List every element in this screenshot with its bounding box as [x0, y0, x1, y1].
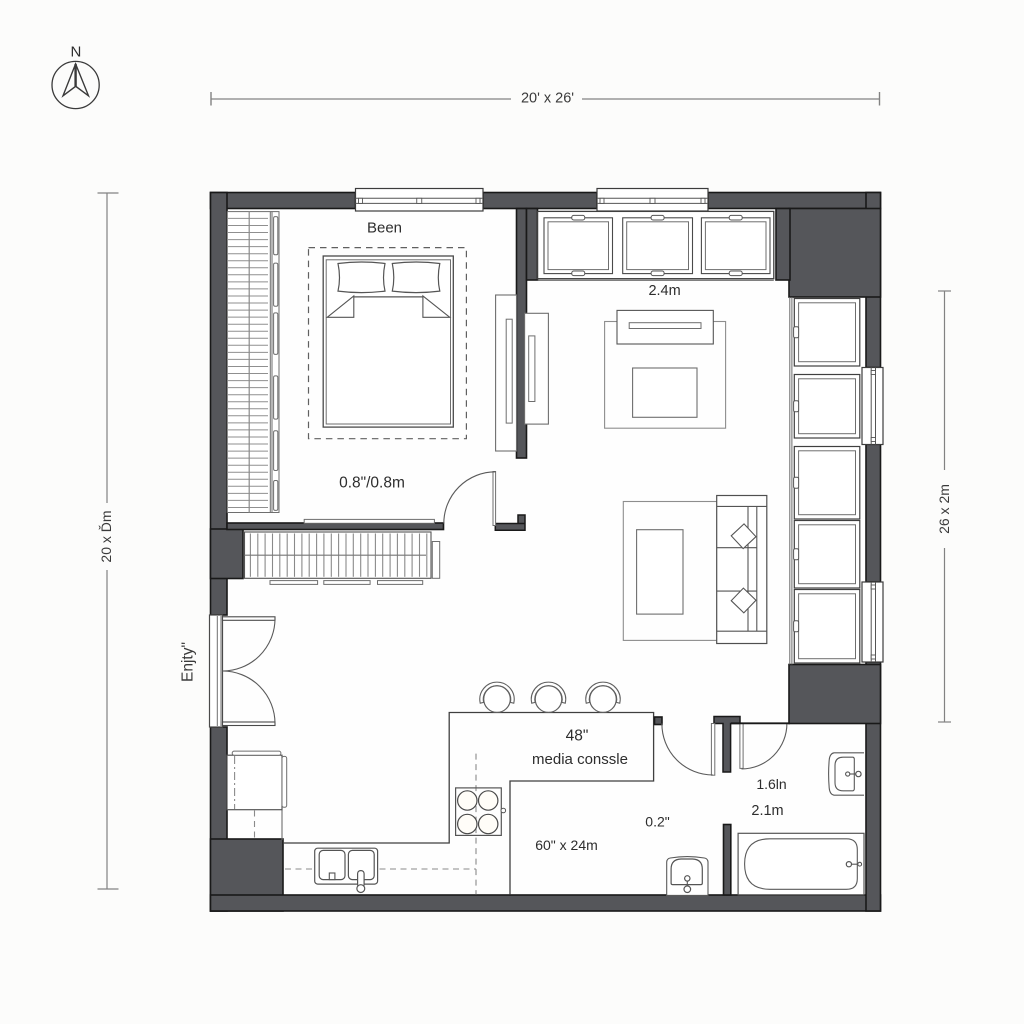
svg-text:media conssle: media conssle: [532, 751, 628, 768]
svg-text:1.6ln: 1.6ln: [756, 776, 786, 792]
svg-text:20' x 26': 20' x 26': [521, 91, 574, 107]
svg-text:26 x 2m: 26 x 2m: [936, 484, 952, 534]
svg-text:N: N: [70, 44, 81, 61]
svg-text:48": 48": [566, 728, 589, 745]
svg-text:2.4m: 2.4m: [648, 283, 680, 299]
svg-text:60" x 24m: 60" x 24m: [535, 837, 598, 853]
svg-text:2.1m: 2.1m: [751, 803, 783, 819]
svg-text:Enjty": Enjty": [180, 642, 197, 682]
svg-text:0.8"/0.8m: 0.8"/0.8m: [339, 475, 405, 492]
svg-text:20 x Ďm: 20 x Ďm: [98, 510, 114, 562]
svg-text:Been: Been: [367, 220, 402, 237]
svg-text:0.2": 0.2": [645, 814, 669, 830]
